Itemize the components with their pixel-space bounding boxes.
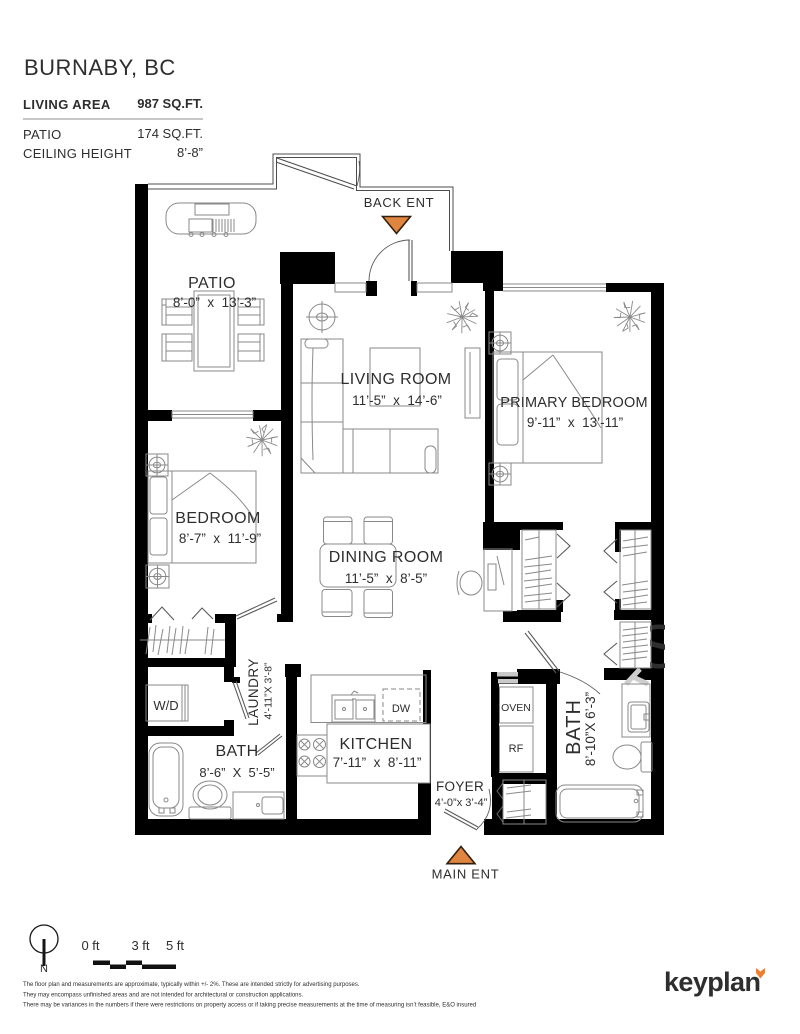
svg-text:BATH: BATH <box>563 699 585 755</box>
svg-text:BACK ENT: BACK ENT <box>364 195 435 210</box>
svg-text:PRIMARY BEDROOM: PRIMARY BEDROOM <box>500 395 648 411</box>
svg-text:5 ft: 5 ft <box>166 938 184 953</box>
svg-text:7’-11” x 8’-11”: 7’-11” x 8’-11” <box>333 755 422 770</box>
svg-text:8’-0” x 13’-3”: 8’-0” x 13’-3” <box>173 295 256 310</box>
svg-text:8’-10”X 6’-3”: 8’-10”X 6’-3” <box>583 692 598 766</box>
svg-text:There may be variances in the: There may be variances in the numbers if… <box>23 1003 476 1009</box>
svg-text:4’-0”x 3’-4”: 4’-0”x 3’-4” <box>435 797 488 809</box>
svg-text:LIVING ROOM: LIVING ROOM <box>340 371 451 388</box>
svg-text:W/D: W/D <box>153 698 178 713</box>
svg-text:N: N <box>40 963 48 975</box>
svg-text:BATH: BATH <box>215 743 258 760</box>
svg-text:8’-8”: 8’-8” <box>177 145 203 160</box>
svg-text:MAIN ENT: MAIN ENT <box>432 867 500 882</box>
svg-text:BEDROOM: BEDROOM <box>175 510 260 527</box>
svg-text:BURNABY, BC: BURNABY, BC <box>24 55 176 80</box>
svg-text:RF: RF <box>509 743 524 755</box>
svg-text:9’-11” x 13’-11”: 9’-11” x 13’-11” <box>527 415 623 430</box>
svg-text:3 ft: 3 ft <box>131 938 149 953</box>
svg-text:FOYER: FOYER <box>436 779 484 794</box>
svg-text:8’-6” X 5’-5”: 8’-6” X 5’-5” <box>199 765 274 780</box>
svg-text:keyplan: keyplan <box>664 967 760 997</box>
svg-text:DINING ROOM: DINING ROOM <box>329 549 444 566</box>
svg-text:The floor plan and measurement: The floor plan and measurements are appr… <box>23 982 360 988</box>
svg-text:PATIO: PATIO <box>188 275 236 292</box>
svg-text:174 SQ.FT.: 174 SQ.FT. <box>137 126 203 141</box>
svg-text:PATIO: PATIO <box>23 127 62 142</box>
svg-text:0 ft: 0 ft <box>81 938 99 953</box>
svg-text:987 SQ.FT.: 987 SQ.FT. <box>137 96 203 111</box>
svg-text:OVEN: OVEN <box>501 702 531 714</box>
svg-text:DW: DW <box>392 703 411 715</box>
svg-text:11’-5” x 8’-5”: 11’-5” x 8’-5” <box>345 571 427 586</box>
svg-text:KITCHEN: KITCHEN <box>339 736 412 753</box>
svg-text:They may encompass unfinished: They may encompass unfinished areas and … <box>23 992 303 998</box>
svg-text:11’-5” x 14’-6”: 11’-5” x 14’-6” <box>352 393 442 408</box>
svg-text:CEILING HEIGHT: CEILING HEIGHT <box>23 146 132 161</box>
svg-text:8’-7” x 11’-9”: 8’-7” x 11’-9” <box>179 531 261 546</box>
svg-text:LAUNDRY: LAUNDRY <box>246 658 261 726</box>
svg-text:4’-11”X 3’-8”: 4’-11”X 3’-8” <box>263 662 275 719</box>
svg-text:LIVING AREA: LIVING AREA <box>23 97 111 112</box>
